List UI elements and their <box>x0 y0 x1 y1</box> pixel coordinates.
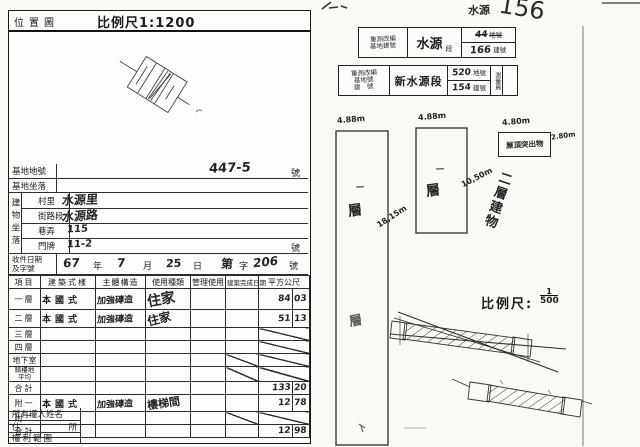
receipt-label-line1: 收件日期 <box>12 255 42 264</box>
stamp-small-title-2: 基地建號 <box>370 42 396 50</box>
stamp-large-empty-cell <box>503 66 517 95</box>
building1-top-dimension: 4.88m <box>337 114 366 125</box>
receipt-month-value: 7 <box>116 256 125 270</box>
survey-form: 位置圖 比例尺1:1200 基地地號 447-5 號 基地坐落 建物坐落 村里 … <box>8 10 311 444</box>
cutoff-scribble <box>322 2 347 9</box>
field-row-receipt: 收件日期 及字號 67 年 7 月 25 日 第 字 206 號 <box>9 254 308 275</box>
stamp-large-lot-number: 520 <box>452 68 472 79</box>
scale-numerator: 1 <box>540 288 558 295</box>
field-row-lane: 巷弄 115 <box>22 224 308 239</box>
header-style: 建築式樣 <box>41 276 96 289</box>
sketch-scale-label: 比例尺: <box>481 293 533 312</box>
sq-dec: 20 <box>294 383 307 393</box>
owner-name-label: 所有權人姓名 <box>12 408 63 420</box>
stamp-small-section-name: 水源 <box>417 33 443 52</box>
use-value: 樓梯間 <box>146 393 181 413</box>
table-row-floor1: 一層 本國式 加強磚造 住家 84 03 <box>9 289 310 310</box>
roofbox-top-dimension: 4.80m <box>502 116 531 127</box>
structure-value: 加強磚造 <box>96 311 133 325</box>
owner-name-row: 所有權人姓名 <box>9 408 81 421</box>
stamp-large-section-name: 新水源段 <box>395 73 443 89</box>
building2-mark: 一 <box>436 164 445 175</box>
roof-projection-label: 屋頂突出物 <box>505 138 543 151</box>
header-item: 項目 <box>9 276 41 289</box>
row-label: 二層 <box>9 310 41 328</box>
sketch-scale-fraction: 1 500 <box>540 288 558 306</box>
stamp-large-lot-label: 地號 <box>473 70 486 77</box>
building1-mark: 一 <box>356 182 365 193</box>
stamp-large-surveyor-cell: 測量員 <box>491 66 503 95</box>
sq-dec: 03 <box>294 294 307 304</box>
structure-value: 加強磚造 <box>96 292 133 306</box>
stamp-small-section-unit: 段 <box>446 44 453 54</box>
table-header-row: 項目 建築式樣 主體構造 使用種類 管理使用 建築完成日期 平方公尺 <box>9 276 310 289</box>
field-row-village: 村里 水源里 <box>22 193 308 209</box>
corner-note-number: 156 <box>497 0 547 25</box>
stamp-small-section-cell: 水源 段 <box>408 28 461 57</box>
stamp-large-title-3: 建 號 <box>354 83 374 91</box>
building1-side-dimension: 18,15m <box>375 204 408 230</box>
lane-value: 115 <box>67 224 89 236</box>
map-header: 位置圖 比例尺1:1200 <box>9 11 310 32</box>
street-value: 水源路 <box>61 206 98 226</box>
field-row-street: 街路段 水源路 <box>22 209 308 224</box>
table-row-arcade: 騎樓地 平均 <box>9 367 310 382</box>
address-label-1: 住 <box>12 421 21 433</box>
receipt-day-unit: 日 <box>193 259 202 272</box>
header-structure: 主體構造 <box>96 276 146 289</box>
row-label: 四層 <box>9 341 41 354</box>
receipt-month-unit: 月 <box>143 259 152 272</box>
location-map-title: 位置圖 <box>14 14 59 29</box>
scanned-survey-document: 位置圖 比例尺1:1200 基地地號 447-5 號 基地坐落 建物坐落 村里 … <box>0 0 640 447</box>
row-label: 地下室 <box>9 354 41 367</box>
receipt-year-value: 67 <box>62 256 80 271</box>
door-number-unit: 號 <box>291 241 300 254</box>
registration-stamp-small: 重測改編 基地建號 水源 段 44 地號 166 建號 <box>358 27 516 58</box>
receipt-year-unit: 年 <box>93 259 102 272</box>
address-label-2: 所 <box>68 421 77 433</box>
receipt-word2: 字 <box>239 259 248 272</box>
row-label: 三層 <box>9 328 41 341</box>
door-number-label: 門牌 <box>38 240 66 252</box>
table-row-floor3: 三層 <box>9 328 310 341</box>
building2-top-dimension: 4.88m <box>418 111 447 122</box>
location-map-scale: 比例尺1:1200 <box>97 12 195 31</box>
rights-scope-row: 權利範圍 <box>9 433 81 443</box>
sq-int: 133 <box>272 383 292 394</box>
use-value: 住家 <box>145 287 176 312</box>
hatched-strip-2 <box>452 379 592 417</box>
style-value: 本國式 <box>42 296 81 306</box>
table-row-floor4: 四層 <box>9 341 310 354</box>
stamp-small-title-cell: 重測改編 基地建號 <box>359 28 408 57</box>
roof-projection-box: 屋頂突出物 <box>498 132 551 157</box>
stamp-large-numbers-cell: 520 地號 154 建號 <box>448 66 492 95</box>
scale-denominator: 500 <box>540 295 558 306</box>
building1-floor-label: 層 <box>347 199 364 221</box>
row-label-line2: 平均 <box>18 373 31 381</box>
table-row-floor2: 二層 本國式 加強磚造 住家 51 13 <box>9 310 310 328</box>
sq-dec: 78 <box>294 398 307 408</box>
door-number-value: 11-2 <box>67 239 93 251</box>
header-square-meters: 平方公尺 <box>259 276 310 289</box>
lane-label: 巷弄 <box>38 225 66 237</box>
site-number-unit: 號 <box>291 166 300 179</box>
field-row-door-number: 門牌 11-2 號 <box>22 239 308 254</box>
stamp-small-lot-label: 地號 <box>489 32 502 39</box>
receipt-word1: 第 <box>220 254 234 272</box>
sq-int: 12 <box>278 398 291 408</box>
stamp-large-title-cell: 重測改編 基地號 建 號 <box>339 66 390 95</box>
header-management: 管理使用 <box>191 276 226 289</box>
stamp-small-building-number: 166 <box>470 44 492 56</box>
stamp-small-numbers-cell: 44 地號 166 建號 <box>462 28 515 57</box>
field-row-site-number: 基地地號 447-5 號 <box>9 164 308 179</box>
hatched-strip-1 <box>390 312 566 372</box>
stamp-large-building-number: 154 <box>452 83 472 94</box>
receipt-day-value: 25 <box>166 257 182 271</box>
receipt-label-line2: 及字號 <box>12 264 35 273</box>
building-location-group-label: 建物坐落 <box>9 193 22 254</box>
header-completion-date: 建築完成日期 <box>226 276 259 289</box>
table-row-basement: 地下室 <box>9 354 310 367</box>
sq-int: 84 <box>278 294 291 304</box>
receipt-number: 206 <box>253 254 279 271</box>
stamp-small-building-label: 建號 <box>493 47 506 54</box>
building2-floor-label: 層 <box>425 179 442 201</box>
stamp-large-building-label: 建號 <box>473 85 486 92</box>
stamp-large-surveyor-label: 測量員 <box>494 72 500 90</box>
corner-note-word: 水源 <box>468 2 491 19</box>
field-row-site-location: 基地坐落 <box>9 179 308 193</box>
stamp-small-lot-number: 44 <box>474 30 487 40</box>
table-row-subtotal: 合計 133 20 <box>9 382 310 395</box>
roofbox-side-dimension: 2.80m <box>551 130 576 141</box>
row-label: 一層 <box>9 289 41 310</box>
sq-dec: 13 <box>294 313 307 323</box>
sq-int: 12 <box>278 426 291 436</box>
row-label: 合計 <box>9 382 41 395</box>
building1-outline <box>336 131 388 445</box>
sq-int: 51 <box>278 313 291 323</box>
rights-scope-label: 權利範圍 <box>12 432 54 444</box>
stamp-large-section-cell: 新水源段 <box>390 66 447 95</box>
site-number-label: 基地地號 <box>12 165 53 177</box>
building2-side-dimension: 10,50m <box>460 166 494 189</box>
registration-stamp-large: 重測改編 基地號 建 號 新水源段 520 地號 154 建號 測量員 <box>338 65 518 96</box>
site-location-label: 基地坐落 <box>12 180 53 192</box>
structure-value: 加強磚造 <box>96 396 133 410</box>
building1-floor-label-2: 層 <box>347 309 363 330</box>
site-number-value: 447-5 <box>208 160 251 176</box>
receipt-number-unit: 號 <box>289 259 298 272</box>
sq-dec: 98 <box>294 426 307 436</box>
style-value: 本國式 <box>42 315 81 325</box>
building1-bottom-scribble <box>359 424 365 432</box>
